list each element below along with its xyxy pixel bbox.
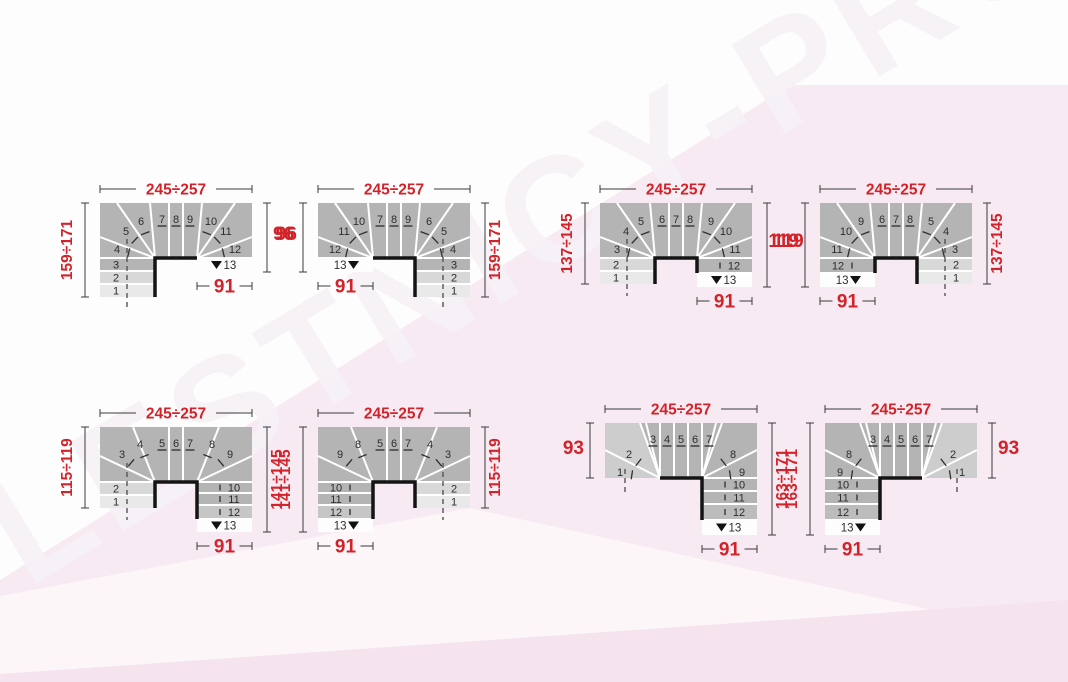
svg-text:91: 91	[714, 292, 736, 313]
stair-plan-2-winder-stair-u-left: 45610111298732113245÷25796159÷17191	[273, 175, 523, 355]
svg-text:8: 8	[355, 439, 361, 451]
svg-text:4: 4	[884, 434, 890, 446]
svg-text:3: 3	[119, 449, 125, 461]
svg-text:4: 4	[450, 244, 456, 256]
svg-text:12: 12	[228, 507, 240, 519]
svg-text:8: 8	[687, 214, 693, 226]
svg-text:7: 7	[187, 438, 193, 450]
svg-text:91: 91	[335, 277, 357, 298]
svg-text:9: 9	[187, 214, 193, 226]
svg-text:9: 9	[739, 467, 745, 479]
svg-text:96: 96	[276, 224, 297, 245]
svg-text:1: 1	[959, 467, 965, 479]
svg-text:10: 10	[228, 483, 240, 495]
svg-text:9: 9	[837, 467, 843, 479]
svg-text:9: 9	[227, 449, 233, 461]
svg-text:7: 7	[706, 434, 712, 446]
svg-text:245÷257: 245÷257	[364, 182, 424, 199]
svg-text:1: 1	[613, 273, 619, 285]
svg-text:8: 8	[173, 214, 179, 226]
svg-text:2: 2	[451, 273, 457, 285]
svg-text:12: 12	[832, 261, 844, 273]
svg-text:12: 12	[733, 507, 745, 519]
stair-plan-8-winder-stair-l-left: 12897654310111213245÷257163÷1719391	[780, 395, 1030, 575]
svg-text:9: 9	[405, 214, 411, 226]
svg-text:9: 9	[708, 216, 714, 228]
svg-text:4: 4	[664, 434, 670, 446]
svg-text:2: 2	[626, 449, 632, 461]
svg-text:159÷171: 159÷171	[59, 220, 76, 281]
svg-text:1: 1	[451, 286, 457, 298]
svg-text:91: 91	[842, 540, 864, 561]
svg-text:9: 9	[858, 216, 864, 228]
svg-text:141÷145: 141÷145	[277, 449, 294, 510]
stair-plan-3-winder-stair-u-right-deep-exit: 34591011678211213245÷257137÷14511991	[555, 175, 805, 355]
svg-text:2: 2	[451, 484, 457, 496]
svg-text:3: 3	[113, 260, 119, 272]
svg-text:3: 3	[870, 434, 876, 446]
svg-text:10: 10	[720, 226, 732, 238]
canvas: LESTNICY-PROSTO.RU 45610111278932113245÷…	[0, 0, 1068, 682]
svg-text:7: 7	[159, 214, 165, 226]
svg-text:4: 4	[623, 226, 629, 238]
svg-text:137÷145: 137÷145	[989, 213, 1006, 274]
svg-text:3: 3	[445, 449, 451, 461]
svg-text:245÷257: 245÷257	[146, 182, 206, 199]
svg-text:4: 4	[114, 244, 120, 256]
svg-text:91: 91	[335, 537, 357, 558]
svg-text:4: 4	[943, 226, 949, 238]
svg-text:245÷257: 245÷257	[871, 402, 931, 419]
svg-text:9: 9	[337, 449, 343, 461]
svg-text:245÷257: 245÷257	[146, 406, 206, 423]
svg-text:12: 12	[229, 244, 241, 256]
svg-text:4: 4	[427, 439, 433, 451]
svg-text:5: 5	[678, 434, 684, 446]
svg-text:10: 10	[837, 480, 849, 492]
svg-text:8: 8	[846, 449, 852, 461]
stair-diagrams-grid: 45610111278932113245÷257159÷171969145610…	[0, 0, 1068, 682]
svg-text:2: 2	[950, 449, 956, 461]
svg-text:12: 12	[329, 244, 341, 256]
svg-text:13: 13	[224, 260, 237, 272]
svg-text:2: 2	[613, 260, 619, 272]
svg-text:5: 5	[159, 438, 165, 450]
svg-text:10: 10	[840, 226, 852, 238]
svg-text:245÷257: 245÷257	[646, 182, 706, 199]
svg-text:159÷171: 159÷171	[487, 220, 504, 281]
svg-text:13: 13	[334, 260, 347, 272]
svg-text:6: 6	[659, 214, 665, 226]
svg-text:115÷119: 115÷119	[59, 438, 76, 497]
svg-text:11: 11	[220, 226, 231, 238]
svg-text:7: 7	[405, 438, 411, 450]
svg-text:91: 91	[719, 540, 741, 561]
svg-text:137÷145: 137÷145	[559, 213, 576, 274]
svg-text:7: 7	[377, 214, 383, 226]
svg-text:91: 91	[214, 277, 236, 298]
stair-plan-6-winder-stair-u-left-long-exit: 34897652110111213245÷257141÷145115÷11991	[273, 399, 523, 579]
svg-text:93: 93	[563, 438, 584, 459]
svg-text:10: 10	[733, 480, 745, 492]
svg-text:11: 11	[338, 226, 349, 238]
svg-text:115÷119: 115÷119	[487, 438, 504, 497]
svg-text:5: 5	[898, 434, 904, 446]
stair-plan-7-winder-stair-l-right: 12893456710111213245÷25793163÷17191	[560, 395, 810, 575]
svg-text:3: 3	[451, 260, 457, 272]
svg-text:13: 13	[334, 521, 347, 533]
svg-text:1: 1	[113, 497, 119, 509]
svg-text:10: 10	[205, 216, 217, 228]
svg-text:1: 1	[617, 467, 623, 479]
svg-text:8: 8	[730, 449, 736, 461]
svg-text:3: 3	[952, 244, 958, 256]
svg-text:6: 6	[391, 438, 397, 450]
svg-text:2: 2	[953, 260, 959, 272]
svg-text:5: 5	[441, 226, 447, 238]
svg-text:6: 6	[138, 216, 144, 228]
svg-text:11: 11	[733, 493, 744, 505]
svg-text:245÷257: 245÷257	[651, 402, 711, 419]
svg-text:5: 5	[123, 226, 129, 238]
svg-text:6: 6	[879, 214, 885, 226]
svg-text:13: 13	[841, 523, 854, 535]
svg-text:11: 11	[228, 494, 239, 506]
svg-text:6: 6	[912, 434, 918, 446]
svg-text:11: 11	[837, 493, 848, 505]
stair-plan-4-winder-stair-u-left-deep-exit: 34591011876211213245÷257119137÷14591	[775, 175, 1025, 355]
svg-text:93: 93	[998, 438, 1019, 459]
svg-text:11: 11	[729, 244, 740, 256]
svg-text:2: 2	[113, 273, 119, 285]
svg-text:12: 12	[728, 261, 740, 273]
svg-text:163÷171: 163÷171	[784, 449, 801, 510]
svg-text:12: 12	[330, 507, 342, 519]
svg-text:7: 7	[893, 214, 899, 226]
svg-text:11: 11	[831, 244, 842, 256]
svg-text:8: 8	[209, 439, 215, 451]
svg-text:91: 91	[214, 537, 236, 558]
svg-text:245÷257: 245÷257	[364, 406, 424, 423]
svg-text:1: 1	[113, 286, 119, 298]
svg-text:6: 6	[426, 216, 432, 228]
svg-text:10: 10	[330, 483, 342, 495]
svg-text:119: 119	[768, 231, 799, 252]
svg-text:10: 10	[353, 216, 365, 228]
svg-text:6: 6	[692, 434, 698, 446]
svg-text:5: 5	[928, 216, 934, 228]
svg-text:91: 91	[837, 292, 859, 313]
svg-text:5: 5	[638, 216, 644, 228]
svg-text:1: 1	[451, 497, 457, 509]
svg-text:8: 8	[391, 214, 397, 226]
svg-text:3: 3	[650, 434, 656, 446]
svg-text:8: 8	[907, 214, 913, 226]
stair-plan-5-winder-stair-u-right-long-exit: 34895672110111213245÷257115÷119141÷14591	[55, 399, 305, 579]
stair-plan-1-winder-stair-u-right: 45610111278932113245÷257159÷1719691	[55, 175, 305, 355]
svg-text:2: 2	[113, 484, 119, 496]
svg-text:13: 13	[224, 521, 237, 533]
svg-text:13: 13	[724, 275, 737, 287]
svg-text:3: 3	[614, 244, 620, 256]
svg-text:5: 5	[377, 438, 383, 450]
svg-text:11: 11	[330, 494, 341, 506]
svg-text:13: 13	[729, 523, 742, 535]
svg-text:1: 1	[953, 273, 959, 285]
svg-text:245÷257: 245÷257	[866, 182, 926, 199]
svg-text:7: 7	[926, 434, 932, 446]
svg-text:13: 13	[836, 275, 849, 287]
svg-text:7: 7	[673, 214, 679, 226]
svg-text:12: 12	[837, 507, 849, 519]
svg-text:6: 6	[173, 438, 179, 450]
svg-text:4: 4	[137, 439, 143, 451]
